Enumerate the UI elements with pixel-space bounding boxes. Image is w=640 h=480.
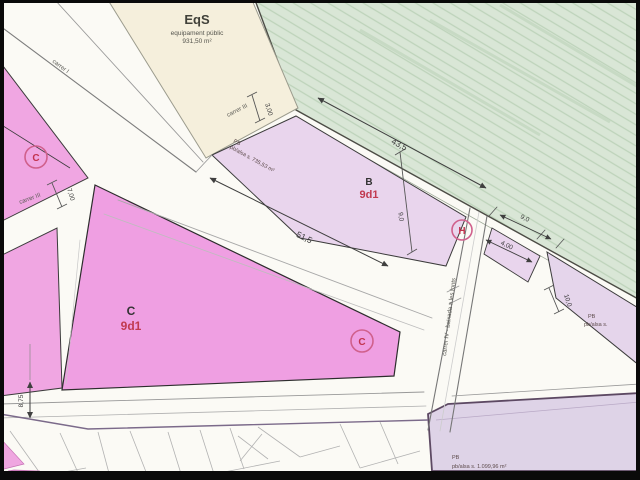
parcel-b-letter: B <box>365 177 372 188</box>
plan-canvas: EqS equipament públic 931,50 m² B 9d1 C … <box>0 0 640 480</box>
pb-right-line1: PB <box>588 314 596 320</box>
pb-bottom-line1: PB <box>452 455 460 461</box>
eqs-type-label: equipament públic <box>171 30 225 37</box>
marker-letter-h: H <box>458 226 465 237</box>
marker-letter-c-left: C <box>32 153 39 164</box>
zoning-plan-map: EqS equipament públic 931,50 m² B 9d1 C … <box>0 0 640 480</box>
pb-bottom-line2: pb/alsa s. 1.099,96 m² <box>452 464 507 470</box>
marker-letter-c-center: C <box>358 337 365 348</box>
parcel-c-letter: C <box>127 304 136 318</box>
dim-text-9-0-b: 9,0 <box>396 212 404 222</box>
parcel-bottom-right <box>428 393 640 471</box>
parcel-c-zone: 9d1 <box>121 319 142 333</box>
eqs-code-label: EqS <box>184 12 210 27</box>
parcel-left-lower <box>0 228 62 396</box>
parcel-b-zone: 9d1 <box>360 189 379 201</box>
dim-text-8-75: 8,75 <box>18 394 25 407</box>
eqs-area-label: 931,50 m² <box>182 38 212 45</box>
pb-right-line2: pb/alsa s. <box>584 322 608 328</box>
